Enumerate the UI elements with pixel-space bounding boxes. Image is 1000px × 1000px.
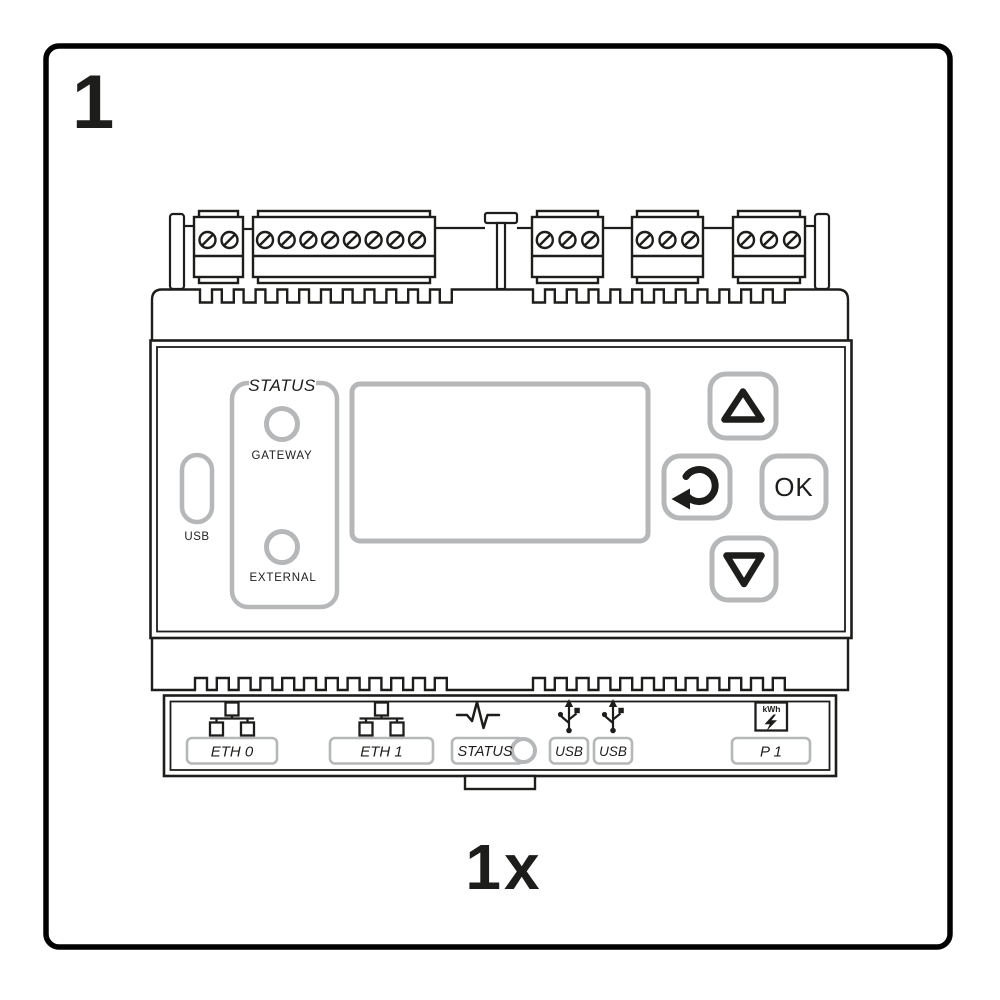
screw-icon	[761, 232, 777, 248]
usb-slot-icon	[182, 455, 212, 522]
screw-icon	[257, 232, 273, 248]
screw-icon	[222, 232, 238, 248]
screw-icon	[637, 232, 653, 248]
gateway-led-label: GATEWAY	[252, 450, 313, 462]
terminal-block-3pin	[632, 211, 703, 283]
external-led-icon	[267, 532, 298, 563]
status-port-label: STATUS	[457, 744, 512, 760]
screw-icon	[344, 232, 360, 248]
screw-icon	[682, 232, 698, 248]
terminal-block-2pin	[194, 211, 243, 283]
screw-icon	[409, 232, 425, 248]
screw-icon	[784, 232, 800, 248]
screw-icon	[537, 232, 553, 248]
screw-icon	[300, 232, 316, 248]
terminal-block-3pin	[733, 211, 805, 283]
din-rail-clip-tab	[465, 776, 535, 789]
screw-icon	[560, 232, 576, 248]
usb1-label: USB	[555, 744, 583, 759]
ok-button: OK	[762, 456, 826, 518]
screw-icon	[322, 232, 338, 248]
status-section-title: STATUS	[248, 376, 316, 395]
screw-icon	[279, 232, 295, 248]
down-button	[712, 538, 776, 600]
ok-button-label: OK	[774, 472, 814, 502]
device-front-panel: USB STATUS GATEWAY EXTERNAL	[151, 341, 852, 639]
screw-icon	[660, 232, 676, 248]
step-number: 1	[72, 60, 114, 145]
gateway-led-icon	[267, 409, 298, 440]
bottom-connector-panel: ETH 0 ETH 1 STATUS USB USB	[164, 696, 836, 790]
screw-icon	[582, 232, 598, 248]
instruction-step-panel: 1	[0, 0, 1000, 1000]
p1-label: P 1	[760, 744, 782, 761]
status-led-dot-icon	[512, 739, 535, 762]
device-illustration: 1	[0, 0, 1000, 1000]
quantity-label: 1x	[465, 831, 542, 903]
screw-icon	[366, 232, 382, 248]
eth1-label: ETH 1	[360, 744, 403, 761]
terminal-block-3pin	[532, 211, 603, 283]
external-led-label: EXTERNAL	[249, 572, 316, 584]
return-button	[664, 456, 730, 518]
eth0-label: ETH 0	[211, 744, 254, 761]
up-button	[710, 374, 776, 438]
display-screen	[352, 384, 648, 541]
kwh-icon-text: kWh	[763, 704, 781, 714]
usb2-label: USB	[599, 744, 627, 759]
terminal-block-8pin	[253, 211, 435, 283]
screw-icon	[200, 232, 216, 248]
screw-icon	[738, 232, 754, 248]
usb-slot-label: USB	[184, 531, 209, 543]
screw-icon	[387, 232, 403, 248]
